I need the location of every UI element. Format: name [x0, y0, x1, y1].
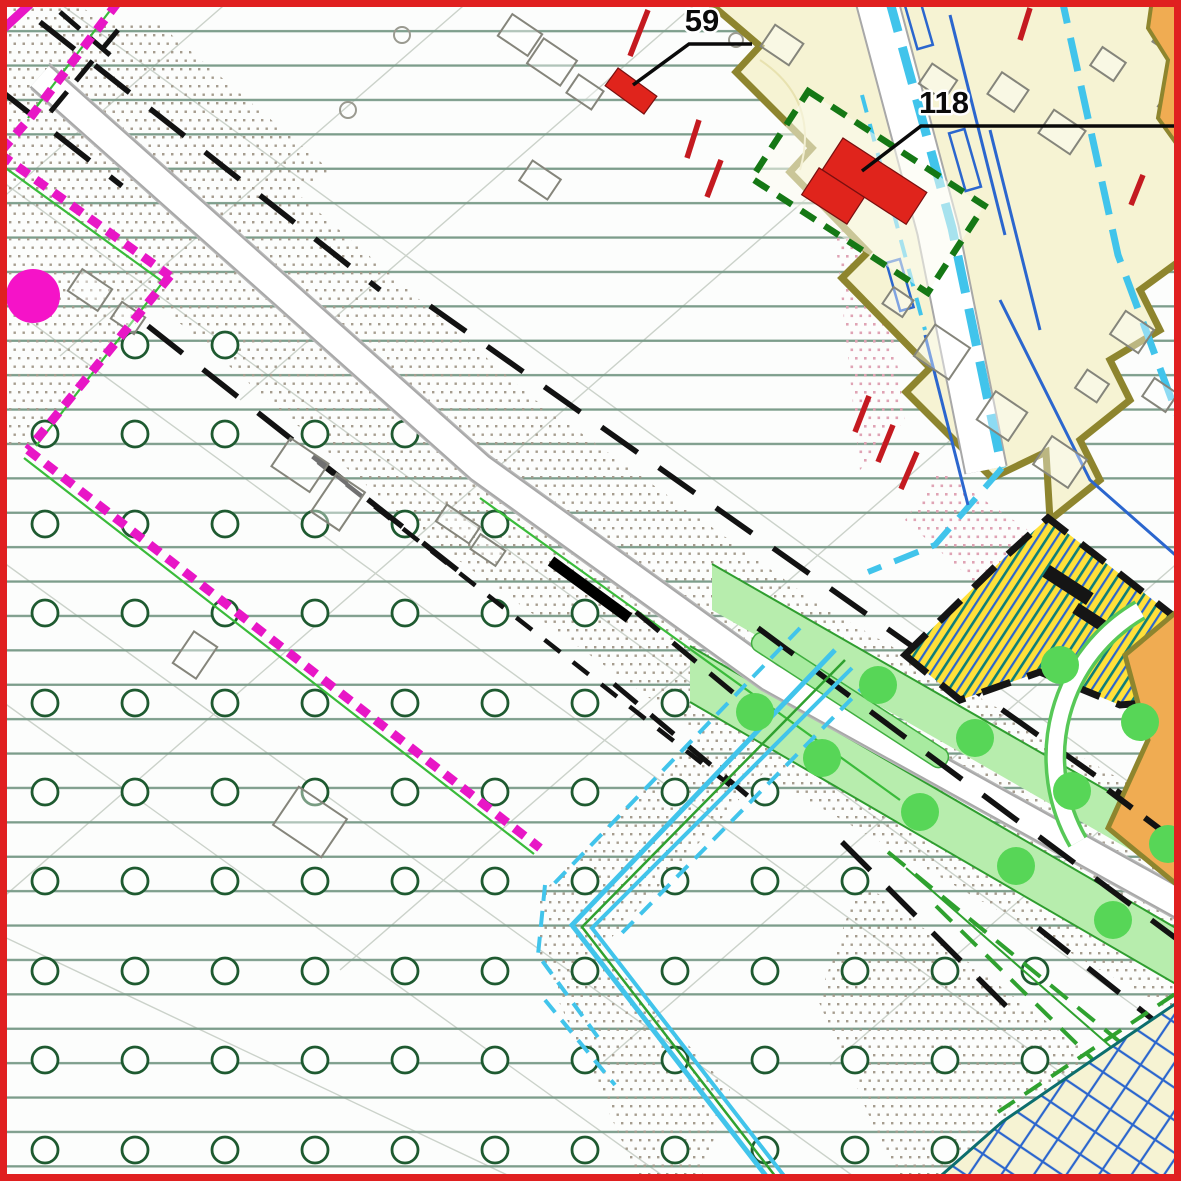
- orchard-tree-symbol: [32, 1047, 58, 1073]
- orchard-tree-symbol: [662, 690, 688, 716]
- street-tree: [859, 666, 897, 704]
- orchard-tree-symbol: [482, 1137, 508, 1163]
- orchard-tree-symbol: [212, 690, 238, 716]
- orchard-tree-symbol: [842, 868, 868, 894]
- orchard-tree-symbol: [212, 1047, 238, 1073]
- orchard-tree-symbol: [302, 600, 328, 626]
- orchard-tree-symbol: [842, 1047, 868, 1073]
- orchard-tree-symbol: [122, 958, 148, 984]
- street-tree: [956, 719, 994, 757]
- orchard-tree-symbol: [302, 1137, 328, 1163]
- orchard-tree-symbol: [842, 958, 868, 984]
- orchard-tree-symbol: [1022, 1047, 1048, 1073]
- orchard-tree-symbol: [122, 600, 148, 626]
- street-tree: [803, 739, 841, 777]
- orchard-tree-symbol: [122, 1137, 148, 1163]
- orchard-tree-symbol: [122, 690, 148, 716]
- orchard-tree-symbol: [212, 779, 238, 805]
- orchard-tree-symbol: [752, 779, 778, 805]
- orchard-tree-symbol: [32, 511, 58, 537]
- orchard-tree-symbol: [302, 690, 328, 716]
- orchard-tree-symbol: [572, 868, 598, 894]
- orchard-tree-symbol: [482, 868, 508, 894]
- orchard-tree-symbol: [212, 332, 238, 358]
- orchard-tree-symbol: [302, 868, 328, 894]
- orchard-tree-symbol: [212, 421, 238, 447]
- orchard-tree-symbol: [392, 1137, 418, 1163]
- orchard-tree-symbol: [482, 958, 508, 984]
- map-canvas: 59 118: [0, 0, 1181, 1181]
- street-tree: [1121, 703, 1159, 741]
- orchard-tree-symbol: [302, 958, 328, 984]
- street-tree: [901, 793, 939, 831]
- street-tree: [736, 693, 774, 731]
- orchard-tree-symbol: [392, 779, 418, 805]
- zoning-plan-svg: 59 118: [0, 0, 1181, 1181]
- orchard-tree-symbol: [572, 690, 598, 716]
- orchard-tree-symbol: [662, 1137, 688, 1163]
- orchard-tree-symbol: [752, 868, 778, 894]
- orchard-tree-symbol: [752, 1047, 778, 1073]
- orchard-tree-symbol: [662, 958, 688, 984]
- orchard-tree-symbol: [842, 1137, 868, 1163]
- orchard-tree-symbol: [302, 1047, 328, 1073]
- orchard-tree-symbol: [482, 690, 508, 716]
- orchard-tree-symbol: [932, 1047, 958, 1073]
- orchard-tree-symbol: [392, 958, 418, 984]
- orchard-tree-symbol: [212, 1137, 238, 1163]
- orchard-tree-symbol: [32, 690, 58, 716]
- orchard-tree-symbol: [482, 600, 508, 626]
- orchard-tree-symbol: [392, 690, 418, 716]
- orchard-tree-symbol: [392, 1047, 418, 1073]
- orchard-tree-symbol: [482, 1047, 508, 1073]
- orchard-tree-symbol: [932, 958, 958, 984]
- street-tree: [1094, 901, 1132, 939]
- orchard-tree-symbol: [32, 1137, 58, 1163]
- orchard-tree-symbol: [932, 1137, 958, 1163]
- orchard-tree-symbol: [302, 421, 328, 447]
- orchard-tree-symbol: [572, 600, 598, 626]
- orchard-tree-symbol: [212, 511, 238, 537]
- orchard-tree-symbol: [572, 1137, 598, 1163]
- orchard-tree-symbol: [122, 868, 148, 894]
- street-tree: [1041, 646, 1079, 684]
- orchard-tree-symbol: [572, 779, 598, 805]
- orchard-tree-symbol: [212, 958, 238, 984]
- orchard-tree-symbol: [752, 958, 778, 984]
- orchard-tree-symbol: [662, 779, 688, 805]
- orchard-tree-symbol: [392, 868, 418, 894]
- orchard-tree-symbol: [122, 779, 148, 805]
- orchard-tree-symbol: [32, 868, 58, 894]
- label-118: 118: [919, 85, 969, 120]
- orchard-tree-symbol: [32, 779, 58, 805]
- label-59: 59: [685, 3, 719, 38]
- orchard-tree-symbol: [32, 958, 58, 984]
- orchard-tree-symbol: [122, 421, 148, 447]
- orchard-tree-symbol: [32, 600, 58, 626]
- street-tree: [1053, 772, 1091, 810]
- orchard-tree-symbol: [122, 1047, 148, 1073]
- orchard-tree-symbol: [212, 868, 238, 894]
- orchard-tree-symbol: [392, 600, 418, 626]
- street-tree: [997, 847, 1035, 885]
- magenta-dot: [6, 269, 60, 323]
- orchard-tree-symbol: [572, 958, 598, 984]
